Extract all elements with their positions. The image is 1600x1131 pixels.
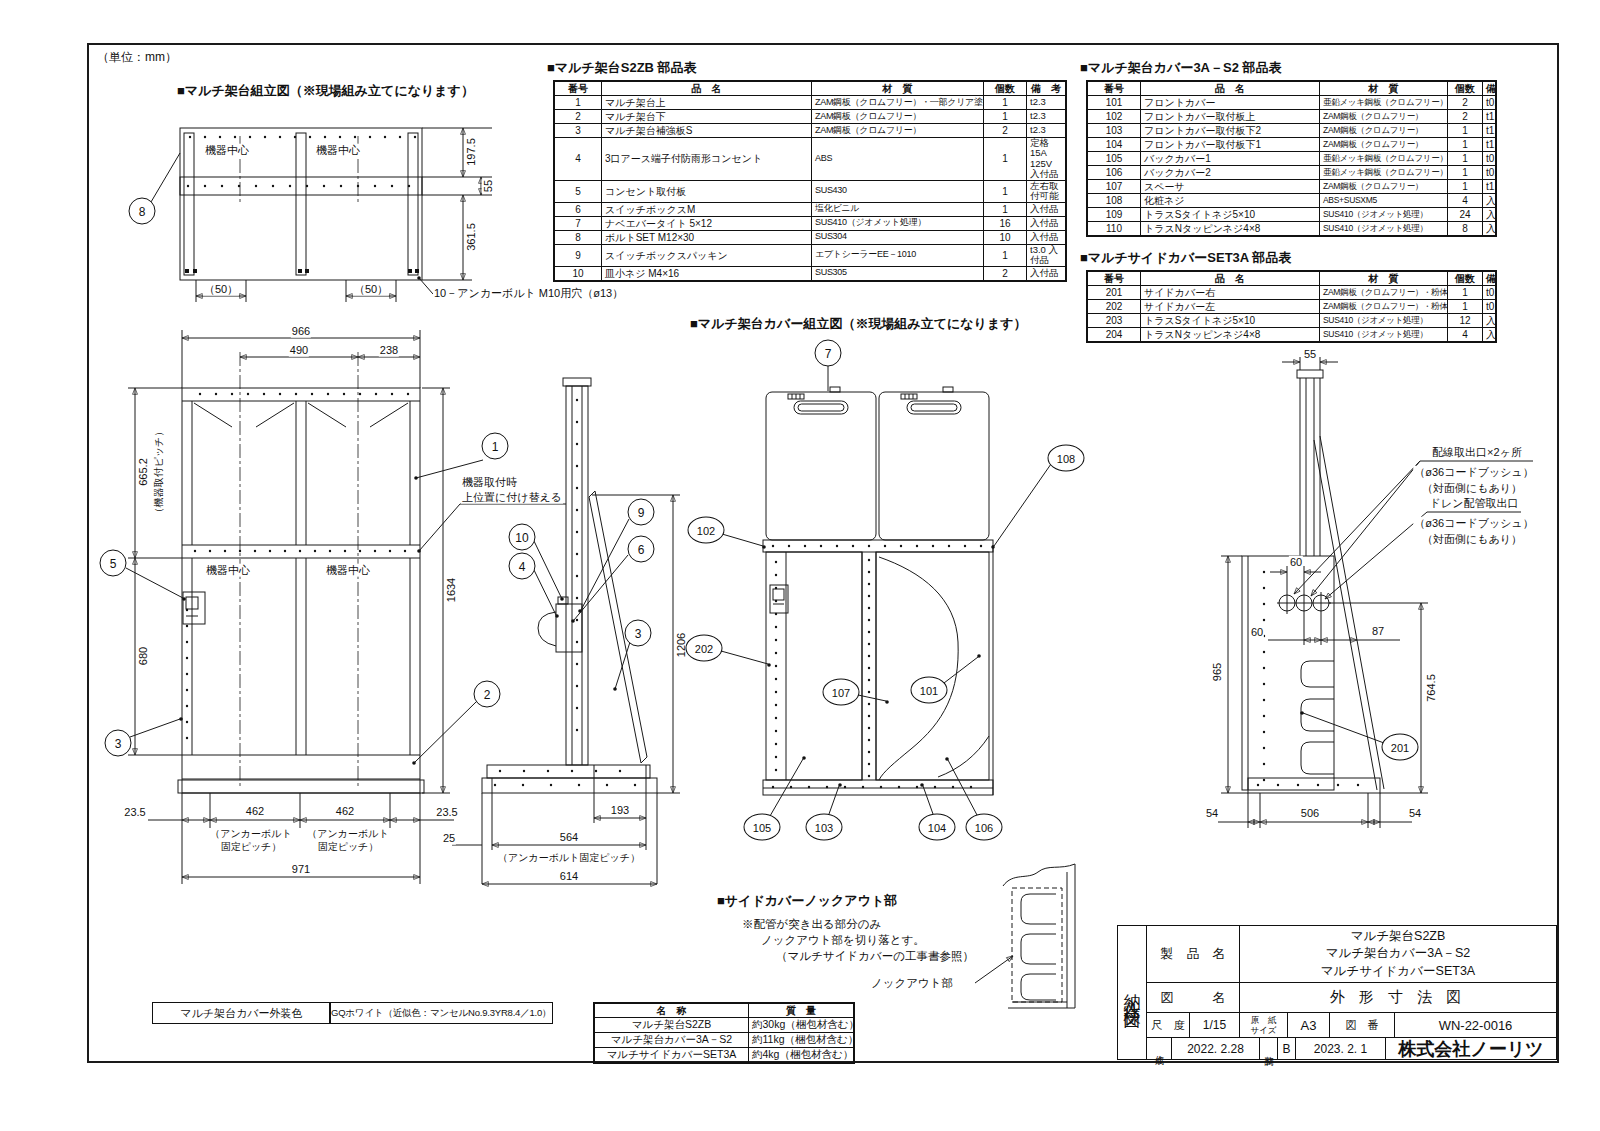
- anchor-pitch-note: （アンカーボルト固定ピッチ）: [497, 852, 641, 864]
- table-cell: 入付品: [1483, 222, 1497, 237]
- table-cell: トラスNタッピンネジ4×8: [1141, 222, 1320, 237]
- table-row: 8ボルトSET M12×30SUS30410入付品: [554, 230, 1066, 244]
- table-title-s2zb: ■マルチ架台S2ZB 部品表: [546, 61, 698, 76]
- dim-564: 564: [559, 831, 579, 844]
- balloon-101: 101: [911, 677, 948, 704]
- balloon-10: 10: [509, 524, 536, 551]
- parts-table-set3a: 番号品 名材 質個数備 考201サイドカバー右ZAM鋼板（クロムフリー）・粉体塗…: [1086, 270, 1497, 343]
- table-header-cell: 個数: [1448, 81, 1483, 96]
- dim-462: 462: [335, 805, 355, 818]
- dim-23-5: 23.5: [123, 806, 146, 819]
- dim-55: 55: [482, 179, 495, 193]
- table-cell: 1: [1448, 152, 1483, 166]
- table-cell: ボルトSET M12×30: [602, 230, 812, 244]
- title-block: 納入仕様図 製 品 名 マルチ架台S2ZB マルチ架台カバー3A－S2 マルチサ…: [1117, 925, 1557, 1060]
- balloon-8: 8: [129, 198, 156, 225]
- table-cell: 103: [1087, 124, 1141, 138]
- stand-front-view: [126, 330, 566, 884]
- unit-note: （単位：mm）: [96, 51, 178, 65]
- product-name-1: マルチ架台S2ZB: [1351, 928, 1446, 946]
- table-row: 6スイッチボックスM塩化ビニル1入付品: [554, 202, 1066, 216]
- table-row: 5コンセント取付板SUS4301左右取付可能: [554, 180, 1066, 202]
- table-cell: ナベエバータイト 5×12: [602, 216, 812, 230]
- table-header-row: 番号品 名材 質個数備 考: [1087, 81, 1496, 96]
- table-cell: t2.3: [1027, 110, 1067, 124]
- table-row: 7ナベエバータイト 5×12SUS410（ジオメット処理）16入付品: [554, 216, 1066, 230]
- table-header-cell: 備 考: [1027, 81, 1067, 96]
- product-name-3: マルチサイドカバーSET3A: [1321, 963, 1475, 981]
- table-cell: 106: [1087, 166, 1141, 180]
- dim-966: 966: [291, 325, 311, 338]
- table-cell: 1: [1448, 300, 1483, 314]
- balloon-5: 5: [100, 550, 127, 577]
- table-cell: 1: [984, 96, 1027, 110]
- table-row: 204トラスNタッピンネジ4×8SUS410（ジオメット処理）4入付品: [1087, 328, 1496, 343]
- dim-665-2-note: （機器取付ピッチ）: [153, 426, 165, 519]
- table-cell: 入付品: [1027, 202, 1067, 216]
- table-cell: 約11kg（梱包材含む）: [749, 1033, 855, 1048]
- table-cell: マルチ架台下: [602, 110, 812, 124]
- table-cell: 皿小ネジ M4×16: [602, 266, 812, 281]
- table-cell: 1: [1448, 286, 1483, 300]
- table-cell: 入付品: [1483, 194, 1497, 208]
- dim-361-5: 361.5: [465, 222, 478, 252]
- dim-23-5: 23.5: [435, 806, 458, 819]
- table-row: 101フロントカバー亜鉛メッキ鋼板（クロムフリー）・粉体塗装2t0.5: [1087, 96, 1496, 110]
- created-date: 2022. 2.28: [1171, 1037, 1260, 1060]
- table-cell: トラスSタイトネジ5×10: [1141, 208, 1320, 222]
- table-cell: 107: [1087, 180, 1141, 194]
- table-cell: 1: [984, 138, 1027, 181]
- table-cell: トラスNタッピンネジ4×8: [1141, 328, 1320, 343]
- table-row: マルチ架台カバー3A－S2約11kg（梱包材含む）: [594, 1033, 854, 1048]
- table-cell: 1: [554, 96, 602, 110]
- table-cell: 3: [554, 124, 602, 138]
- table-cell: 約30kg（梱包材含む）: [749, 1018, 855, 1033]
- table-cell: 108: [1087, 194, 1141, 208]
- table-cell: ABS: [812, 138, 984, 181]
- table-cell: 1: [984, 202, 1027, 216]
- table-row: 203トラスSタイトネジ5×10SUS410（ジオメット処理）12入付品: [1087, 314, 1496, 328]
- product-name-2: マルチ架台カバー3A－S2: [1326, 945, 1471, 963]
- table-cell: 10: [984, 230, 1027, 244]
- dim-25: 25: [442, 832, 456, 845]
- revised-label: 調整: [1259, 1037, 1278, 1060]
- table-cell: 8: [1448, 222, 1483, 237]
- exterior-color-note: マルチ架台カバー外装色 GQホワイト（近似色：マンセルNo.9.3YR8.4／1…: [152, 1002, 553, 1024]
- table-header-cell: 品 名: [602, 81, 812, 96]
- table-cell: 201: [1087, 286, 1141, 300]
- paper-size-label: 原 紙 サイズ: [1239, 1012, 1288, 1038]
- table-header-cell: 品 名: [1141, 81, 1320, 96]
- table-cell: 亜鉛メッキ鋼板（クロムフリー）・粉体塗装: [1320, 166, 1448, 180]
- table-cell: 亜鉛メッキ鋼板（クロムフリー）・粉体塗装: [1320, 96, 1448, 110]
- anchor-pitch-note: （アンカーボルト: [209, 828, 292, 840]
- table-header-cell: 個数: [984, 81, 1027, 96]
- balloon-102: 102: [688, 517, 725, 544]
- table-cell: 8: [554, 230, 602, 244]
- table-header-row: 名 称質 量: [594, 1003, 854, 1018]
- table-cell: マルチ架台カバー3A－S2: [594, 1033, 749, 1048]
- table-cell: t2.3: [1027, 124, 1067, 138]
- table-header-cell: 名 称: [594, 1003, 749, 1018]
- drain-outlet-note: （対面側にもあり）: [1421, 533, 1523, 546]
- table-cell: SUS410（ジオメット処理）: [812, 216, 984, 230]
- section-title-base-assembly: ■マルチ架台組立図（※現場組み立てになります）: [176, 84, 475, 99]
- balloon-4: 4: [509, 553, 536, 580]
- dim-238: 238: [379, 344, 399, 357]
- table-cell: ZAM鋼板（クロムフリー）: [1320, 110, 1448, 124]
- table-cell: 2: [1448, 96, 1483, 110]
- table-row: 107スペーサZAM鋼板（クロムフリー）1t1.0: [1087, 180, 1496, 194]
- table-cell: 亜鉛メッキ鋼板（クロムフリー）・粉体塗装: [1320, 152, 1448, 166]
- table-cell: マルチ架台S2ZB: [594, 1018, 749, 1033]
- table-header-cell: 質 量: [749, 1003, 855, 1018]
- table-cell: スイッチボックスM: [602, 202, 812, 216]
- table-row: マルチ架台S2ZB約30kg（梱包材含む）: [594, 1018, 854, 1033]
- dim-60: 60: [1289, 556, 1303, 569]
- table-cell: 24: [1448, 208, 1483, 222]
- table-row: 3マルチ架台補強板SZAM鋼板（クロムフリー）2t2.3: [554, 124, 1066, 138]
- table-cell: 9: [554, 244, 602, 266]
- table-row: 105バックカバー1亜鉛メッキ鋼板（クロムフリー）・粉体塗装1t0.6: [1087, 152, 1496, 166]
- balloon-106: 106: [966, 814, 1003, 841]
- wiring-outlet-note: （ø36コードブッシュ）: [1413, 466, 1535, 479]
- created-label: 作成: [1146, 1037, 1172, 1060]
- table-cell: ZAM鋼板（クロムフリー）: [812, 110, 984, 124]
- table-cell: SUS410（ジオメット処理）: [1320, 222, 1448, 237]
- table-cell: SUS410（ジオメット処理）: [1320, 328, 1448, 343]
- balloon-201: 201: [1382, 734, 1419, 761]
- dim-971: 971: [291, 863, 311, 876]
- table-cell: t1.2: [1483, 124, 1497, 138]
- table-row: 102フロントカバー取付板上ZAM鋼板（クロムフリー）2t1.2: [1087, 110, 1496, 124]
- balloon-2: 2: [474, 681, 501, 708]
- dim-55: 55: [1303, 348, 1317, 361]
- table-cell: ZAM鋼板（クロムフリー）: [1320, 180, 1448, 194]
- balloon-1: 1: [482, 433, 509, 460]
- table-cell: ZAM鋼板（クロムフリー）: [1320, 138, 1448, 152]
- table-row: 43口アース端子付防雨形コンセントABS1定格 15A 125V 入付品: [554, 138, 1066, 181]
- table-cell: マルチ架台上: [602, 96, 812, 110]
- table-cell: t0.5: [1483, 96, 1497, 110]
- table-cell: ZAM鋼板（クロムフリー）: [1320, 124, 1448, 138]
- remount-note-line2: 上位置に付け替える: [461, 491, 563, 504]
- table-header-cell: 備 考: [1483, 271, 1497, 286]
- table-cell: 105: [1087, 152, 1141, 166]
- machine-center-label: 機器中心: [315, 144, 361, 157]
- exterior-color-label: マルチ架台カバー外装色: [152, 1002, 331, 1024]
- table-row: 103フロントカバー取付板下2ZAM鋼板（クロムフリー）1t1.2: [1087, 124, 1496, 138]
- table-cell: SUS430: [812, 180, 984, 202]
- table-cell: 2: [984, 124, 1027, 138]
- scale-label: 尺 度: [1146, 1012, 1190, 1038]
- dim-197-5: 197.5: [465, 137, 478, 167]
- parts-table-s2zb: 番号品 名材 質個数備 考1マルチ架台上ZAM鋼板（クロムフリー）・一部クリア塗…: [553, 80, 1067, 282]
- dim-462: 462: [245, 805, 265, 818]
- dim-614: 614: [559, 870, 579, 883]
- knockout-note: （マルチサイドカバーの工事書参照）: [775, 950, 975, 963]
- knockout-detail: [975, 864, 1075, 1008]
- anchor-pitch-note: 固定ピッチ）: [317, 841, 380, 853]
- dim-193: 193: [610, 804, 630, 817]
- knockout-label: ノックアウト部: [870, 977, 954, 990]
- table-cell: 約4kg（梱包材含む）: [749, 1048, 855, 1064]
- table-row: 10皿小ネジ M4×16SUS3052入付品: [554, 266, 1066, 281]
- table-cell: SUS305: [812, 266, 984, 281]
- table-title-set3a: ■マルチサイドカバーSET3A 部品表: [1079, 251, 1292, 266]
- table-cell: 左右取付可能: [1027, 180, 1067, 202]
- table-cell: 入付品: [1027, 216, 1067, 230]
- table-row: 106バックカバー2亜鉛メッキ鋼板（クロムフリー）・粉体塗装1t0.6: [1087, 166, 1496, 180]
- table-cell: t1.0: [1483, 180, 1497, 194]
- balloon-108: 108: [1048, 445, 1085, 472]
- dim-54: 54: [1205, 807, 1219, 820]
- table-cell: エプトシーラーEE－1010: [812, 244, 984, 266]
- drawing-name-value: 外 形 寸 法 図: [1239, 982, 1557, 1013]
- table-cell: 204: [1087, 328, 1141, 343]
- table-cell: t0.6: [1483, 166, 1497, 180]
- drawing-name-label: 図 名: [1146, 982, 1240, 1013]
- machine-center-label: 機器中心: [205, 564, 251, 577]
- table-cell: 入付品: [1483, 314, 1497, 328]
- dim-965: 965: [1211, 662, 1224, 682]
- table-title-cover3a: ■マルチ架台カバー3A－S2 部品表: [1079, 61, 1283, 76]
- dim-680: 680: [137, 646, 150, 666]
- dim-60: 60: [1250, 626, 1264, 639]
- table-cell: 1: [984, 110, 1027, 124]
- machine-center-label: 機器中心: [325, 564, 371, 577]
- table-cell: t0.8: [1483, 300, 1497, 314]
- exterior-color-value: GQホワイト（近似色：マンセルNo.9.3YR8.4／1.0）: [329, 1002, 553, 1024]
- table-row: 1マルチ架台上ZAM鋼板（クロムフリー）・一部クリア塗装1t2.3: [554, 96, 1066, 110]
- balloon-103: 103: [806, 814, 843, 841]
- remount-note-line1: 機器取付時: [461, 476, 518, 489]
- table-cell: 102: [1087, 110, 1141, 124]
- table-cell: 4: [554, 138, 602, 181]
- product-names: マルチ架台S2ZB マルチ架台カバー3A－S2 マルチサイドカバーSET3A: [1239, 925, 1557, 983]
- table-row: 9スイッチボックスパッキンエプトシーラーEE－10101t3.0 入付品: [554, 244, 1066, 266]
- table-cell: 3口アース端子付防雨形コンセント: [602, 138, 812, 181]
- machine-center-label: 機器中心: [204, 144, 250, 157]
- table-cell: 6: [554, 202, 602, 216]
- table-cell: t1.2: [1483, 110, 1497, 124]
- knockout-note: ノックアウト部を切り落とす。: [760, 934, 926, 947]
- anchor-pitch-note: （アンカーボルト: [306, 828, 389, 840]
- table-cell: 12: [1448, 314, 1483, 328]
- wiring-outlet-note: （対面側にもあり）: [1421, 482, 1523, 495]
- table-header-cell: 個数: [1448, 271, 1483, 286]
- dim-506: 506: [1300, 807, 1320, 820]
- table-header-cell: 材 質: [812, 81, 984, 96]
- paper-size-value: A3: [1287, 1012, 1330, 1038]
- table-header-cell: 品 名: [1141, 271, 1320, 286]
- table-cell: サイドカバー左: [1141, 300, 1320, 314]
- table-cell: t0.6: [1483, 152, 1497, 166]
- table-row: 202サイドカバー左ZAM鋼板（クロムフリー）・粉体塗装1t0.8: [1087, 300, 1496, 314]
- table-cell: 101: [1087, 96, 1141, 110]
- table-cell: 2: [984, 266, 1027, 281]
- table-cell: 5: [554, 180, 602, 202]
- anchor-hole-note: 10－アンカーボルト M10用穴（ø13）: [433, 287, 624, 300]
- table-header-cell: 番号: [1087, 271, 1141, 286]
- balloon-202: 202: [686, 635, 723, 662]
- anchor-pitch-note: 固定ピッチ）: [220, 841, 283, 853]
- table-cell: 入付品: [1027, 266, 1067, 281]
- table-cell: t3.0 入付品: [1027, 244, 1067, 266]
- knockout-note: ※配管が突き出る部分のみ: [741, 918, 882, 931]
- table-cell: ZAM鋼板（クロムフリー）・粉体塗装: [1320, 286, 1448, 300]
- table-cell: マルチサイドカバーSET3A: [594, 1048, 749, 1064]
- table-cell: トラスSタイトネジ5×10: [1141, 314, 1320, 328]
- table-cell: サイドカバー右: [1141, 286, 1320, 300]
- section-title-cover-assembly: ■マルチ架台カバー組立図（※現場組み立てになります）: [689, 317, 1028, 332]
- table-cell: フロントカバー: [1141, 96, 1320, 110]
- parts-table-cover3a: 番号品 名材 質個数備 考101フロントカバー亜鉛メッキ鋼板（クロムフリー）・粉…: [1086, 80, 1497, 237]
- balloon-7: 7: [815, 340, 842, 367]
- balloon-3: 3: [105, 730, 132, 757]
- dim-665-2: 665.2: [137, 457, 150, 487]
- drawing-number-value: WN-22-0016: [1394, 1012, 1557, 1038]
- table-header-cell: 備 考: [1483, 81, 1497, 96]
- table-cell: 16: [984, 216, 1027, 230]
- table-row: 109トラスSタイトネジ5×10SUS410（ジオメット処理）24入付品: [1087, 208, 1496, 222]
- table-cell: t1.2: [1483, 138, 1497, 152]
- table-cell: t0.8: [1483, 286, 1497, 300]
- company-name: 株式会社ノーリツ: [1385, 1037, 1557, 1060]
- table-cell: 109: [1087, 208, 1141, 222]
- table-cell: ZAM鋼板（クロムフリー）・一部クリア塗装: [812, 96, 984, 110]
- table-cell: t2.3: [1027, 96, 1067, 110]
- table-row: マルチサイドカバーSET3A約4kg（梱包材含む）: [594, 1048, 854, 1064]
- section-title-knockout: ■サイドカバーノックアウト部: [716, 894, 898, 909]
- dim-764-5: 764.5: [1425, 673, 1438, 703]
- table-cell: SUS304: [812, 230, 984, 244]
- drain-outlet-note: ドレン配管取出口: [1429, 497, 1520, 510]
- table-header-cell: 材 質: [1320, 81, 1448, 96]
- table-cell: 1: [1448, 166, 1483, 180]
- paper-size-label-line2: サイズ: [1250, 1025, 1276, 1035]
- table-cell: 2: [554, 110, 602, 124]
- doc-type-label: 納入仕様図: [1117, 925, 1147, 1060]
- table-cell: 入付品: [1027, 230, 1067, 244]
- scale-value: 1/15: [1189, 1012, 1240, 1038]
- revision-code: B: [1277, 1037, 1296, 1060]
- dim-50: （50）: [353, 283, 389, 296]
- table-cell: 4: [1448, 328, 1483, 343]
- table-row: 201サイドカバー右ZAM鋼板（クロムフリー）・粉体塗装1t0.8: [1087, 286, 1496, 300]
- table-cell: 塩化ビニル: [812, 202, 984, 216]
- wiring-outlet-note: 配線取出口×2ヶ所: [1431, 446, 1523, 459]
- drawing-number-label: 図 番: [1329, 1012, 1395, 1038]
- table-row: 108化粧ネジABS+SUSXM54入付品: [1087, 194, 1496, 208]
- balloon-105: 105: [744, 814, 781, 841]
- cover-front-view: [721, 366, 1051, 816]
- table-cell: 104: [1087, 138, 1141, 152]
- table-header-cell: 番号: [1087, 81, 1141, 96]
- table-cell: 4: [1448, 194, 1483, 208]
- balloon-9: 9: [628, 499, 655, 526]
- table-cell: 化粧ネジ: [1141, 194, 1320, 208]
- table-cell: ZAM鋼板（クロムフリー）: [812, 124, 984, 138]
- table-cell: 定格 15A 125V 入付品: [1027, 138, 1067, 181]
- table-cell: 1: [1448, 138, 1483, 152]
- drawing-sheet: （単位：mm） ■マルチ架台組立図（※現場組み立てになります） 機器中心 機器中…: [0, 0, 1600, 1131]
- dim-87: 87: [1371, 625, 1385, 638]
- table-row: 110トラスNタッピンネジ4×8SUS410（ジオメット処理）8入付品: [1087, 222, 1496, 237]
- table-cell: フロントカバー取付板下2: [1141, 124, 1320, 138]
- dim-1634: 1634: [445, 577, 458, 603]
- table-cell: 入付品: [1483, 328, 1497, 343]
- cover-side-view: [1218, 357, 1533, 828]
- table-cell: SUS410（ジオメット処理）: [1320, 314, 1448, 328]
- dim-54: 54: [1408, 807, 1422, 820]
- table-cell: 1: [984, 244, 1027, 266]
- table-row: 104フロントカバー取付板下1ZAM鋼板（クロムフリー）1t1.2: [1087, 138, 1496, 152]
- table-cell: 203: [1087, 314, 1141, 328]
- revised-date: 2023. 2. 1: [1295, 1037, 1386, 1060]
- table-cell: 1: [1448, 180, 1483, 194]
- balloon-107: 107: [823, 679, 860, 706]
- balloon-3: 3: [625, 620, 652, 647]
- table-header-cell: 番号: [554, 81, 602, 96]
- table-cell: 入付品: [1483, 208, 1497, 222]
- table-cell: マルチ架台補強板S: [602, 124, 812, 138]
- table-cell: スイッチボックスパッキン: [602, 244, 812, 266]
- table-row: 2マルチ架台下ZAM鋼板（クロムフリー）1t2.3: [554, 110, 1066, 124]
- paper-size-label-line1: 原 紙: [1251, 1015, 1277, 1025]
- table-header-cell: 材 質: [1320, 271, 1448, 286]
- table-cell: スペーサ: [1141, 180, 1320, 194]
- balloon-6: 6: [628, 536, 655, 563]
- table-cell: 1: [1448, 124, 1483, 138]
- balloon-104: 104: [919, 814, 956, 841]
- table-cell: SUS410（ジオメット処理）: [1320, 208, 1448, 222]
- dim-50: （50）: [203, 283, 239, 296]
- weight-table: 名 称質 量マルチ架台S2ZB約30kg（梱包材含む）マルチ架台カバー3A－S2…: [593, 1002, 855, 1064]
- table-cell: フロントカバー取付板上: [1141, 110, 1320, 124]
- table-cell: 7: [554, 216, 602, 230]
- table-cell: 1: [984, 180, 1027, 202]
- table-cell: ABS+SUSXM5: [1320, 194, 1448, 208]
- drain-outlet-note: （ø36コードブッシュ）: [1413, 517, 1535, 530]
- table-cell: 2: [1448, 110, 1483, 124]
- table-cell: フロントカバー取付板下1: [1141, 138, 1320, 152]
- table-header-row: 番号品 名材 質個数備 考: [1087, 271, 1496, 286]
- table-cell: 110: [1087, 222, 1141, 237]
- dim-490: 490: [289, 344, 309, 357]
- product-name-label: 製 品 名: [1146, 925, 1240, 983]
- table-cell: バックカバー1: [1141, 152, 1320, 166]
- table-cell: バックカバー2: [1141, 166, 1320, 180]
- table-cell: 202: [1087, 300, 1141, 314]
- table-cell: ZAM鋼板（クロムフリー）・粉体塗装: [1320, 300, 1448, 314]
- table-cell: 10: [554, 266, 602, 281]
- table-header-row: 番号品 名材 質個数備 考: [554, 81, 1066, 96]
- table-cell: コンセント取付板: [602, 180, 812, 202]
